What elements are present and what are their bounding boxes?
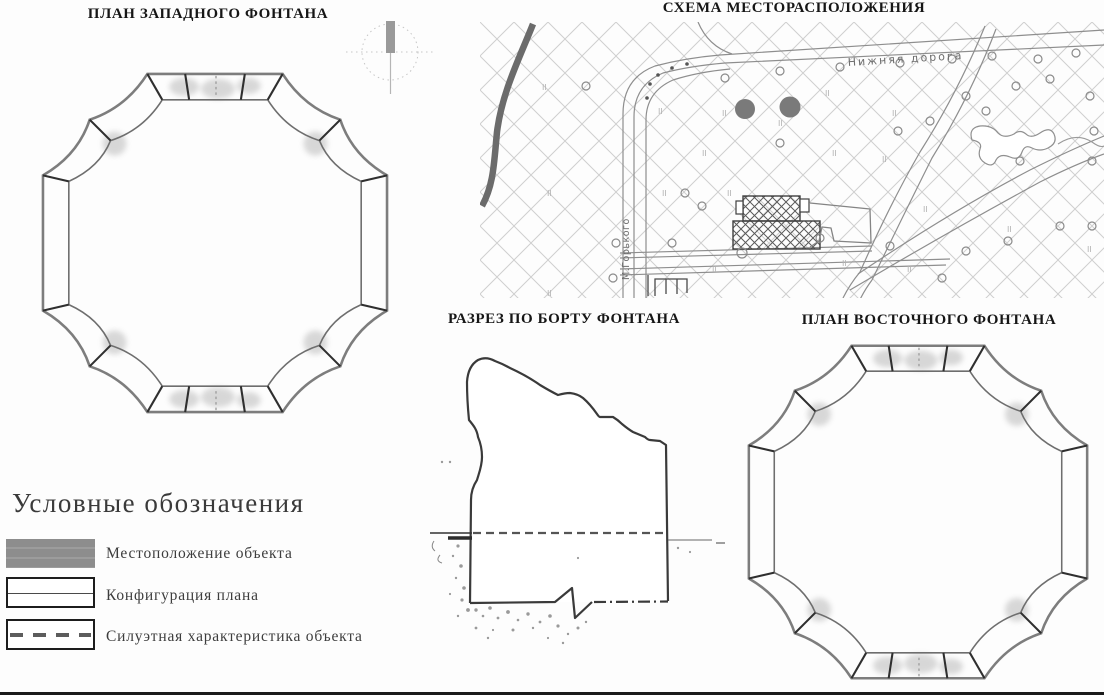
- building-footprint: [733, 196, 820, 249]
- legend-swatch-silhouette: [6, 619, 95, 650]
- svg-text:II: II: [662, 189, 667, 198]
- svg-text:II: II: [547, 289, 552, 298]
- svg-text:II: II: [907, 265, 912, 274]
- location-map: IIII IIII IIII IIII IIII IIII IIII IIII …: [480, 22, 1104, 298]
- location-scheme-title: СХЕМА МЕСТОРАСПОЛОЖЕНИЯ: [644, 0, 944, 17]
- svg-text:II: II: [658, 107, 663, 116]
- drawing-sheet: ПЛАН ЗАПАДНОГО ФОНТАНА СХЕМА МЕСТОРАСПОЛ…: [0, 0, 1104, 695]
- map-hatch-background: [480, 22, 1104, 298]
- profile-dash-dot-line: [594, 602, 668, 603]
- svg-text:II: II: [923, 205, 928, 214]
- legend-label-silhouette: Силуэтная характеристика объекта: [106, 628, 363, 646]
- svg-text:II: II: [892, 109, 897, 118]
- legend-swatch-plan-configuration: [6, 577, 95, 608]
- section-drawing: [428, 338, 728, 695]
- svg-text:II: II: [547, 189, 552, 198]
- svg-text:II: II: [778, 119, 783, 128]
- legend-label-object-location: Местоположение объекта: [106, 545, 293, 563]
- svg-text:II: II: [1087, 245, 1092, 254]
- svg-text:II: II: [1007, 225, 1012, 234]
- svg-text:II: II: [832, 149, 837, 158]
- svg-text:II: II: [727, 189, 732, 198]
- legend-title: Условные обозначения: [12, 488, 305, 519]
- east-fountain-plan-drawing: [736, 336, 1100, 688]
- legend-swatch-object-location: [6, 539, 95, 568]
- section-title: РАЗРЕЗ ПО БОРТУ ФОНТАНА: [423, 311, 705, 328]
- svg-text:II: II: [702, 149, 707, 158]
- west-plan-title: ПЛАН ЗАПАДНОГО ФОНТАНА: [83, 6, 333, 23]
- rim-profile-outline: [467, 358, 668, 603]
- svg-text:II: II: [882, 155, 887, 164]
- north-needle: [386, 21, 395, 53]
- svg-text:II: II: [542, 83, 547, 92]
- svg-text:II: II: [722, 109, 727, 118]
- svg-text:II: II: [712, 265, 717, 274]
- svg-text:II: II: [842, 259, 847, 268]
- west-fountain-plan-drawing: [30, 64, 400, 422]
- east-plan-title: ПЛАН ВОСТОЧНОГО ФОНТАНА: [786, 312, 1072, 329]
- street-label: М.Горького: [621, 218, 632, 280]
- legend-label-plan-configuration: Конфигурация плана: [106, 587, 259, 605]
- svg-text:II: II: [825, 89, 830, 98]
